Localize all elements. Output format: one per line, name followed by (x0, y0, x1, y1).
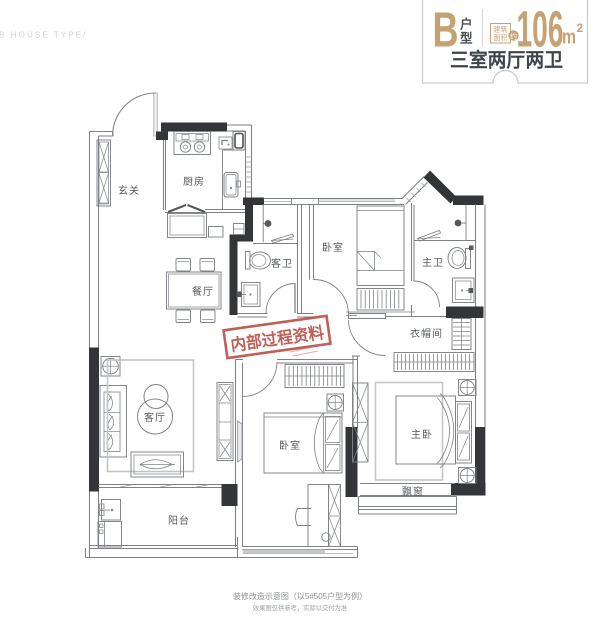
svg-text:型: 型 (460, 31, 473, 46)
svg-text:客卫: 客卫 (271, 257, 293, 270)
svg-text:m: m (562, 27, 576, 49)
svg-text:厨房: 厨房 (183, 175, 205, 188)
svg-text:面积: 面积 (494, 33, 508, 42)
svg-text:主卫: 主卫 (422, 257, 444, 269)
svg-text:餐厅: 餐厅 (192, 285, 214, 298)
svg-text:阳台: 阳台 (168, 514, 190, 527)
svg-text:客厅: 客厅 (144, 411, 166, 424)
svg-text:飘窗: 飘窗 (402, 485, 424, 498)
svg-text:2: 2 (577, 21, 584, 35)
svg-text:衣帽间: 衣帽间 (410, 327, 443, 340)
svg-text:B HOUSE TYPE/: B HOUSE TYPE/ (0, 31, 88, 40)
svg-text:玄关: 玄关 (118, 184, 140, 197)
svg-text:户: 户 (460, 17, 473, 32)
svg-text:建筑: 建筑 (494, 25, 508, 34)
svg-text:主卧: 主卧 (411, 428, 433, 441)
svg-text:卧室: 卧室 (279, 439, 301, 452)
svg-text:卧室: 卧室 (322, 241, 344, 254)
svg-text:装修改造示意图（以5#505户型为例）: 装修改造示意图（以5#505户型为例） (233, 591, 367, 601)
svg-text:三室两厅两卫: 三室两厅两卫 (450, 49, 563, 72)
svg-text:效果图仅供参考，实际以交付为准: 效果图仅供参考，实际以交付为准 (253, 603, 347, 612)
